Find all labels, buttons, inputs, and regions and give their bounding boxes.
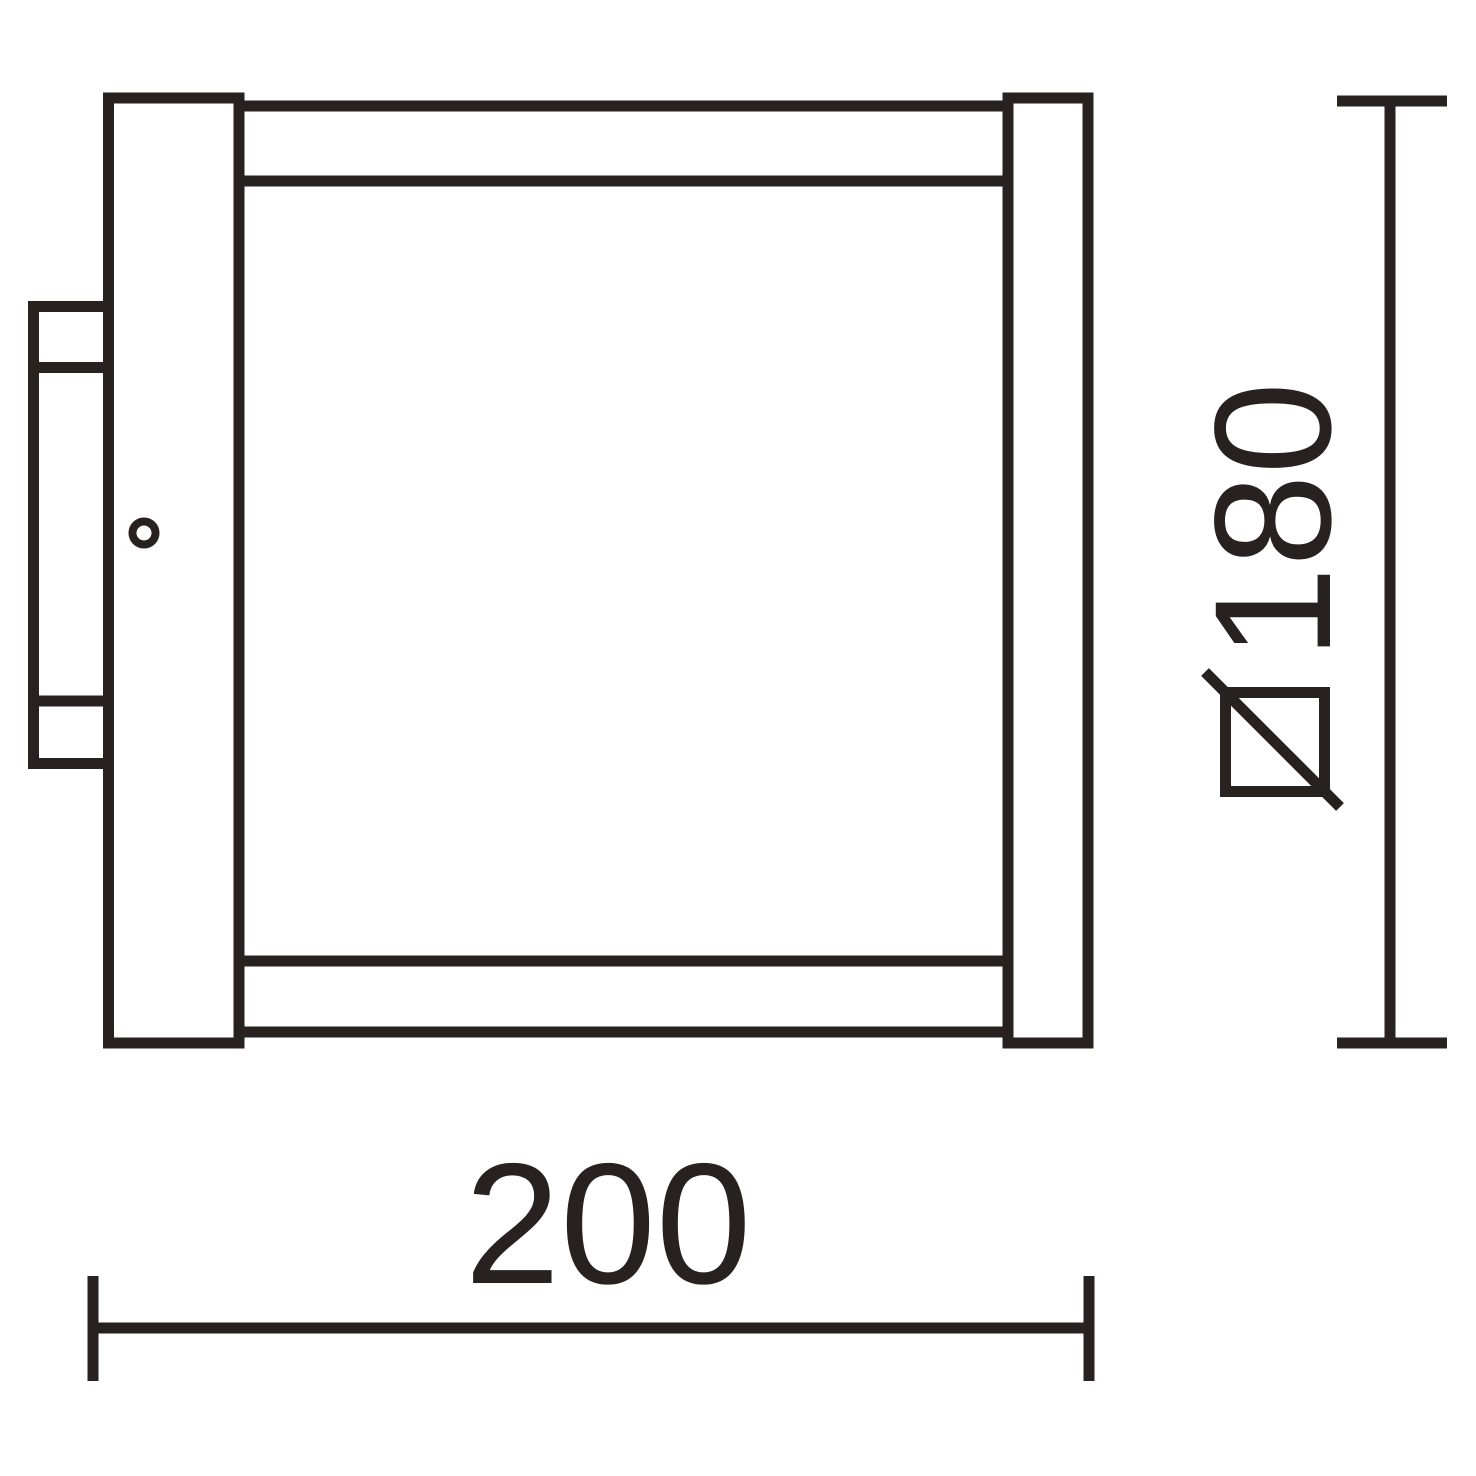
screw-hole (133, 522, 156, 545)
height-dimension: 180 (1181, 101, 1447, 1043)
left-end-cap (109, 98, 240, 1043)
height-dimension-label: 180 (1181, 382, 1366, 659)
wall-mount-bracket (28, 301, 112, 769)
square-section-icon (1205, 672, 1340, 807)
width-dimension: 200 (93, 1128, 1089, 1381)
top-rail (239, 106, 1008, 181)
right-end-cap (1008, 98, 1088, 1043)
dimension-drawing: 200 180 (0, 0, 1476, 1476)
width-dimension-label: 200 (465, 1128, 752, 1320)
fixture-view (28, 98, 1088, 1043)
drawing-canvas: 200 180 (0, 0, 1476, 1476)
bottom-rail (239, 961, 1008, 1032)
height-dimension-label-group: 180 (1181, 382, 1366, 807)
